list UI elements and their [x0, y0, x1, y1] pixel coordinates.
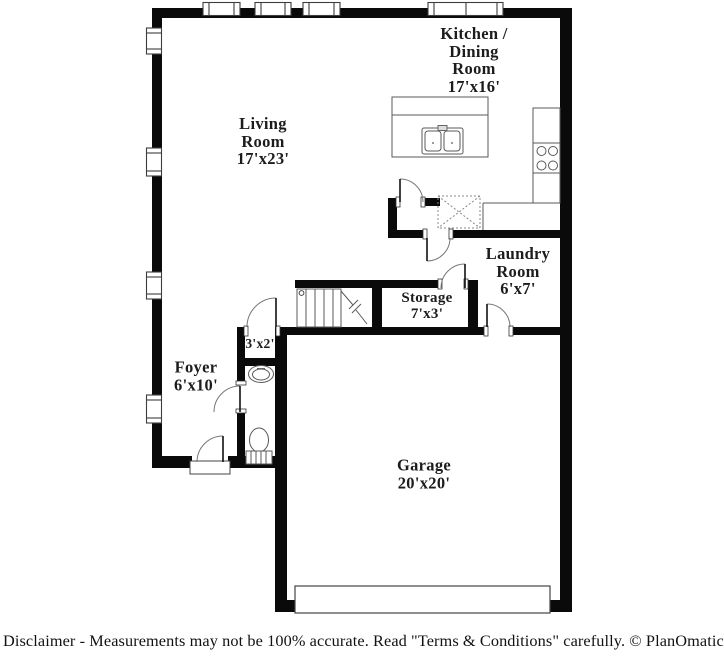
- door-hall-laundry: [427, 238, 450, 261]
- room-label-kitchen: Kitchen / Dining Room 17'x16': [440, 25, 507, 95]
- window: [428, 3, 503, 16]
- pantry: [438, 196, 480, 228]
- double-sink: [422, 126, 463, 155]
- stair-direction-line: [341, 291, 367, 324]
- room-label-living: Living Room 17'x23': [237, 115, 290, 168]
- floorplan-drawing: [0, 0, 724, 624]
- room-label-laundry: Laundry Room 6'x7': [486, 245, 550, 298]
- room-label-foyer: Foyer 6'x10': [174, 359, 218, 394]
- room-dimensions: 6'x7': [486, 280, 550, 298]
- room-label-storage: Storage 7'x3': [401, 290, 452, 322]
- room-dimensions: 20'x20': [397, 474, 451, 492]
- window: [147, 395, 162, 423]
- room-dimensions: 6'x10': [174, 376, 218, 394]
- disclaimer-text: Disclaimer - Measurements may not be 100…: [3, 631, 723, 651]
- window: [147, 272, 162, 299]
- window: [203, 3, 240, 16]
- room-label-closet: 3'x2': [245, 337, 274, 351]
- door-kitchen-hall: [400, 179, 423, 202]
- stove: [533, 143, 560, 173]
- door-closet: [247, 298, 276, 327]
- room-dimensions: 7'x3': [401, 306, 452, 322]
- vanity-sink: [249, 366, 274, 383]
- floorplan-page: Living Room 17'x23' Kitchen / Dining Roo…: [0, 0, 724, 656]
- window: [303, 3, 340, 16]
- window: [147, 148, 162, 176]
- front-door: [190, 436, 230, 474]
- room-dimensions: 17'x23': [237, 150, 290, 168]
- garage-door: [295, 586, 550, 613]
- room-dimensions: 3'x2': [245, 337, 274, 351]
- exterior-walls: [152, 8, 572, 612]
- staircase: [297, 289, 367, 327]
- window: [255, 3, 291, 16]
- window: [147, 28, 162, 54]
- room-label-garage: Garage 20'x20': [397, 457, 451, 492]
- door-laundry-garage: [487, 304, 510, 327]
- room-dimensions: 17'x16': [440, 78, 507, 96]
- toilet: [246, 428, 272, 464]
- door-storage: [441, 264, 465, 288]
